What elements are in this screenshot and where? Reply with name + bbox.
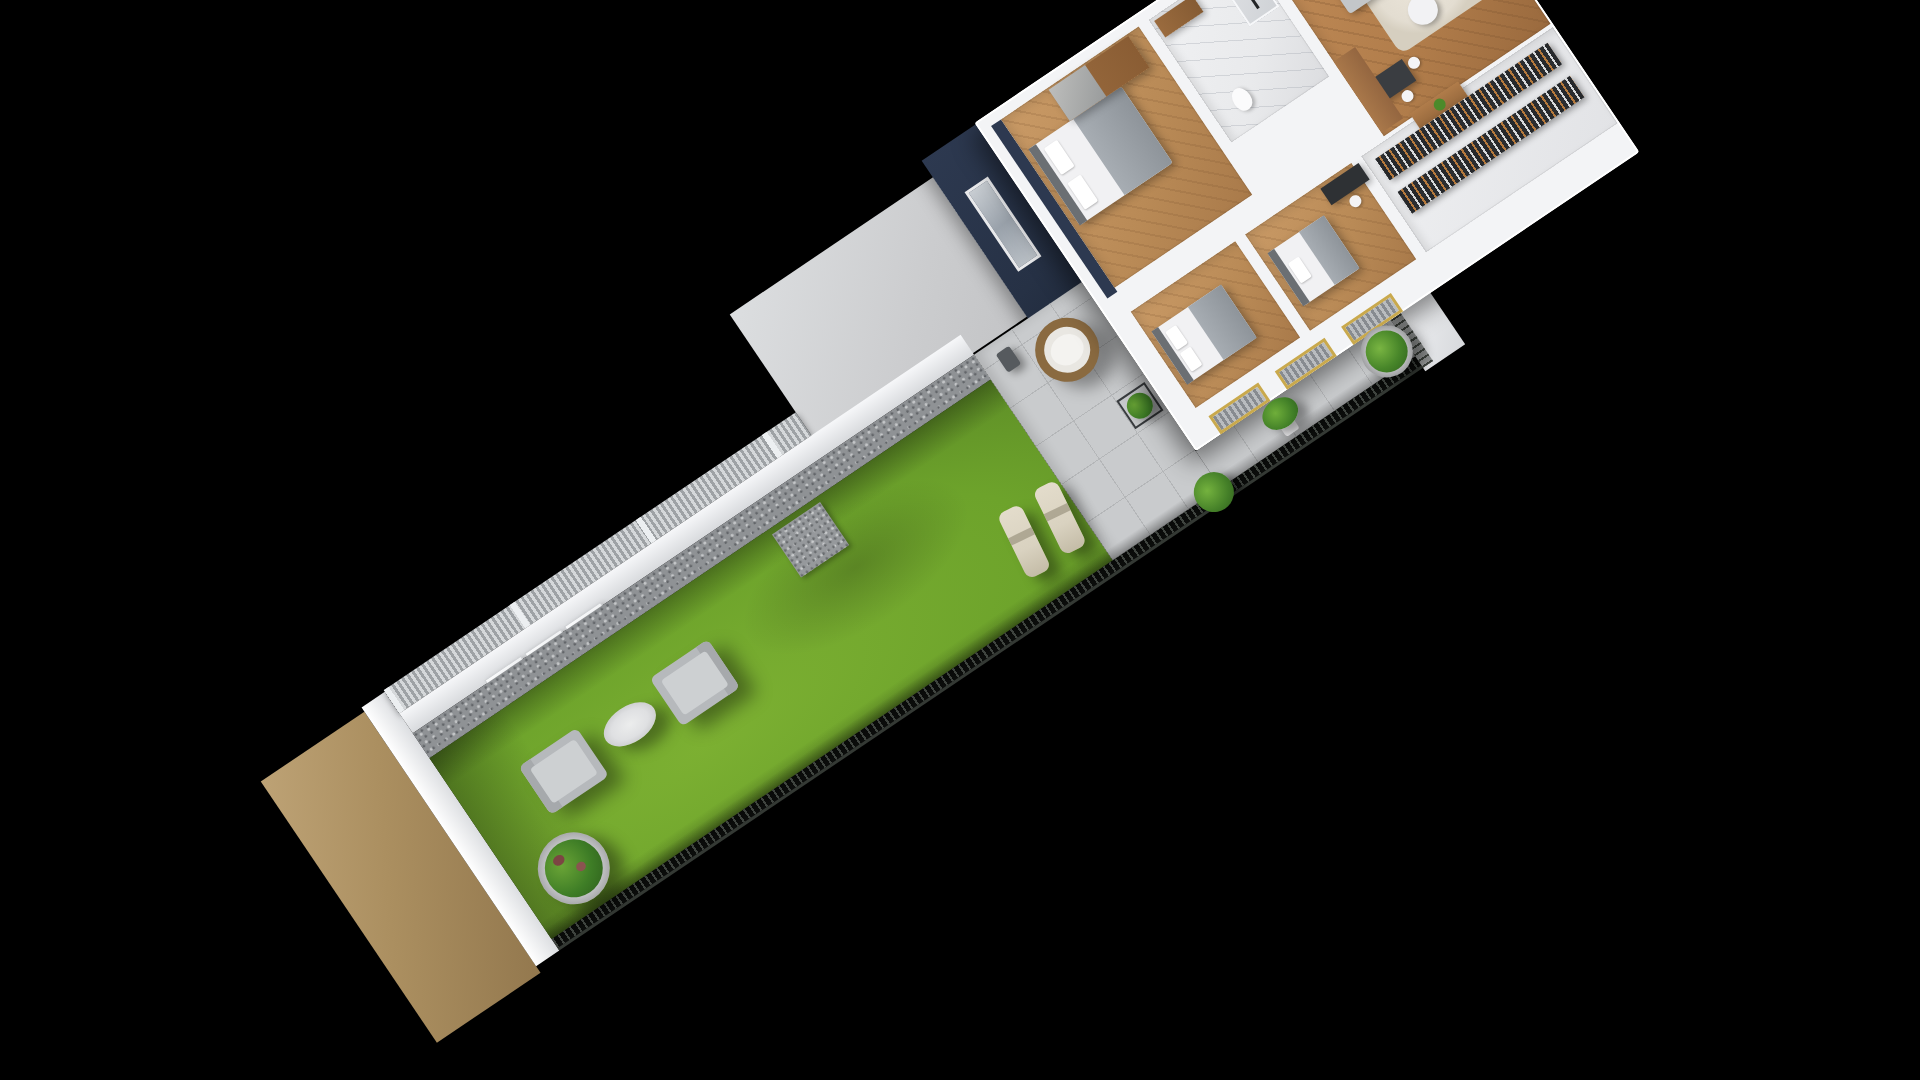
lounger-fold	[1008, 527, 1035, 546]
floorplan-scene	[133, 0, 1818, 1080]
lounger-fold	[1044, 503, 1071, 522]
render-canvas	[0, 0, 1920, 1080]
egg-chair-cushion	[1045, 328, 1090, 372]
shower-rail	[1243, 0, 1260, 9]
